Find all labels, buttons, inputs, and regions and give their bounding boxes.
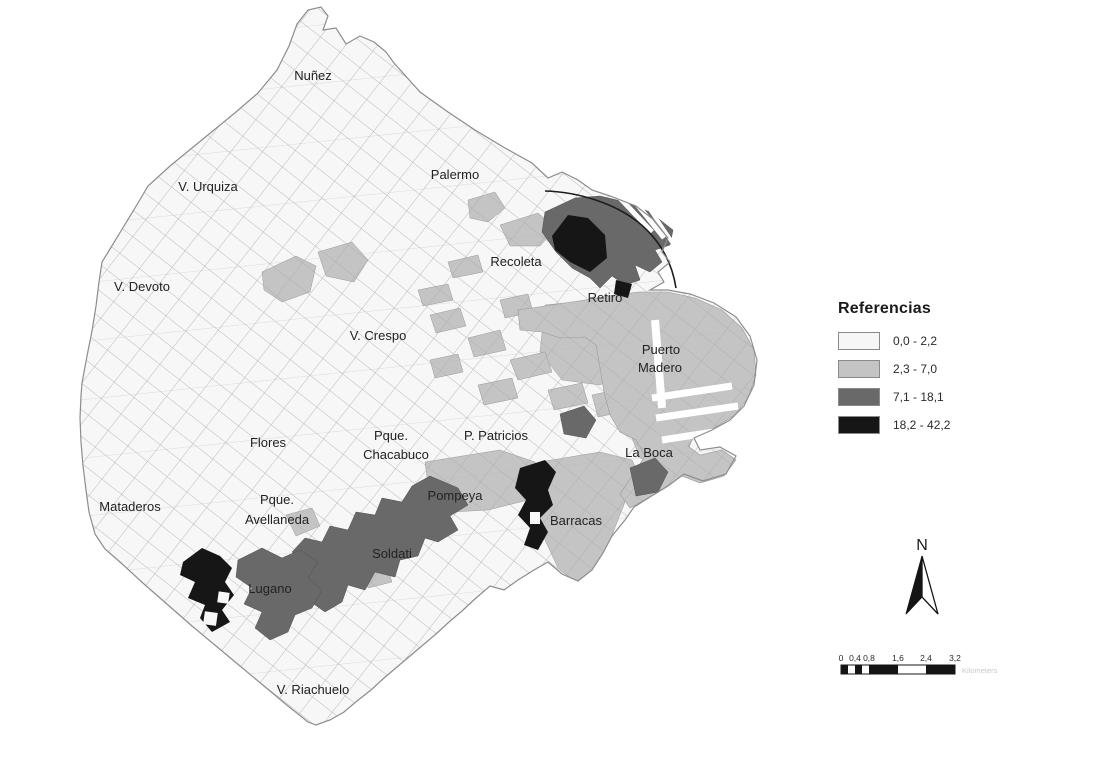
scale-bar-segment — [855, 665, 862, 674]
neighborhood-label: Chacabuco — [363, 447, 429, 462]
neighborhood-label: V. Urquiza — [178, 179, 238, 194]
neighborhood-label: Palermo — [431, 167, 479, 182]
district-hole — [203, 611, 218, 626]
scale-bar-segment — [926, 665, 955, 674]
scale-tick-label: 0,4 — [849, 653, 861, 663]
scale-bar: 0 0,4 0,8 1,6 2,4 3,2 Kilometers — [839, 653, 998, 675]
figure-canvas: Nuñez Palermo V. Urquiza V. Devoto Recol… — [0, 0, 1098, 764]
legend-label: 0,0 - 2,2 — [893, 334, 937, 348]
legend-item: 18,2 - 42,2 — [838, 415, 1028, 434]
legend-label: 18,2 - 42,2 — [893, 418, 950, 432]
scale-tick-label: 0 — [839, 653, 844, 663]
neighborhood-label: Puerto — [642, 342, 680, 357]
scale-unit-label: Kilometers — [962, 666, 998, 675]
neighborhood-label: Madero — [638, 360, 682, 375]
north-arrow-left — [906, 556, 922, 614]
neighborhood-label: P. Patricios — [464, 428, 529, 443]
scale-bar-segment — [841, 665, 848, 674]
legend: Referencias 0,0 - 2,2 2,3 - 7,0 7,1 - 18… — [838, 300, 1028, 443]
legend-item: 2,3 - 7,0 — [838, 359, 1028, 378]
north-label: N — [916, 537, 928, 554]
district-hole — [530, 512, 540, 524]
legend-item: 7,1 - 18,1 — [838, 387, 1028, 406]
legend-swatch — [838, 360, 880, 378]
neighborhood-label: Mataderos — [99, 499, 161, 514]
scale-tick-label: 3,2 — [949, 653, 961, 663]
scale-tick-label: 0,8 — [863, 653, 875, 663]
neighborhood-label: Avellaneda — [245, 512, 310, 527]
legend-swatch — [838, 416, 880, 434]
neighborhood-label: La Boca — [625, 445, 673, 460]
neighborhood-label: Pque. — [260, 492, 294, 507]
neighborhood-label: Soldati — [372, 546, 412, 561]
neighborhood-label: V. Devoto — [114, 279, 170, 294]
neighborhood-label: Recoleta — [490, 254, 542, 269]
neighborhood-label: Barracas — [550, 513, 603, 528]
legend-swatch — [838, 388, 880, 406]
neighborhood-label: V. Riachuelo — [277, 682, 350, 697]
neighborhood-label: V. Crespo — [350, 328, 407, 343]
north-arrow: N — [906, 537, 938, 614]
legend-item: 0,0 - 2,2 — [838, 331, 1028, 350]
north-arrow-right — [922, 556, 938, 614]
legend-swatch — [838, 332, 880, 350]
legend-title: Referencias — [838, 300, 1028, 318]
scale-tick-label: 2,4 — [920, 653, 932, 663]
neighborhood-label: Nuñez — [294, 68, 332, 83]
neighborhood-label: Pompeya — [428, 488, 484, 503]
neighborhood-label: Retiro — [588, 290, 623, 305]
neighborhood-label: Pque. — [374, 428, 408, 443]
legend-label: 7,1 - 18,1 — [893, 390, 944, 404]
neighborhood-label: Flores — [250, 435, 287, 450]
district-hole — [217, 591, 229, 603]
neighborhood-label: Lugano — [248, 581, 291, 596]
legend-label: 2,3 - 7,0 — [893, 362, 937, 376]
scale-tick-label: 1,6 — [892, 653, 904, 663]
scale-bar-segment — [869, 665, 898, 674]
